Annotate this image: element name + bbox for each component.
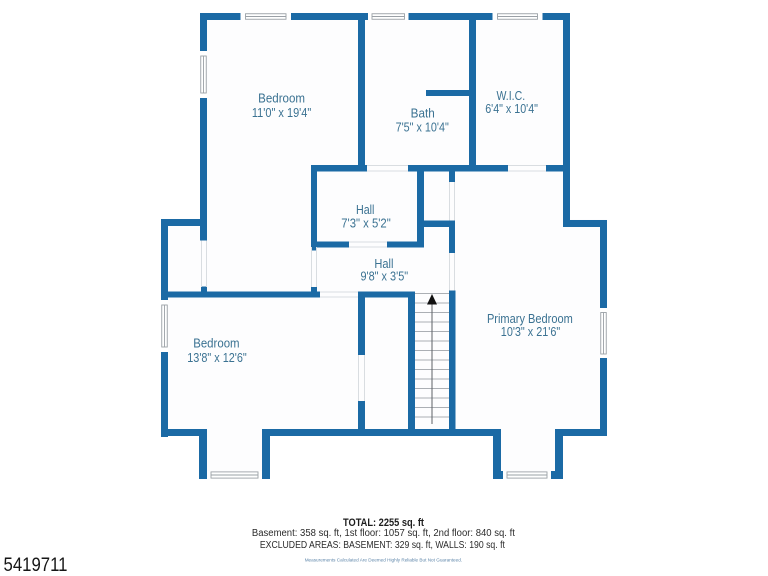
svg-text:Bath: Bath [411, 106, 435, 120]
svg-text:10'3" x 21'6": 10'3" x 21'6" [501, 325, 560, 339]
svg-text:7'5" x 10'4": 7'5" x 10'4" [396, 121, 449, 135]
svg-text:13'8" x 12'6": 13'8" x 12'6" [187, 351, 247, 365]
svg-text:EXCLUDED AREAS: BASEMENT: 329: EXCLUDED AREAS: BASEMENT: 329 sq. ft, WA… [260, 540, 505, 551]
svg-text:Measurements Calculated Are De: Measurements Calculated Are Deemed Highl… [305, 558, 462, 564]
svg-text:W.I.C.: W.I.C. [496, 89, 525, 103]
svg-text:Primary Bedroom: Primary Bedroom [487, 312, 573, 326]
svg-text:6'4" x 10'4": 6'4" x 10'4" [485, 102, 538, 116]
svg-text:Bedroom: Bedroom [193, 337, 239, 351]
svg-text:11'0" x 19'4": 11'0" x 19'4" [252, 106, 311, 120]
svg-text:9'8" x 3'5": 9'8" x 3'5" [360, 269, 408, 283]
svg-text:5419711: 5419711 [4, 555, 68, 576]
svg-text:Bedroom: Bedroom [258, 91, 305, 105]
svg-text:Basement: 358 sq. ft, 1st floo: Basement: 358 sq. ft, 1st floor: 1057 sq… [252, 528, 515, 539]
svg-text:Hall: Hall [356, 203, 375, 217]
svg-text:7'3" x 5'2": 7'3" x 5'2" [341, 216, 391, 230]
